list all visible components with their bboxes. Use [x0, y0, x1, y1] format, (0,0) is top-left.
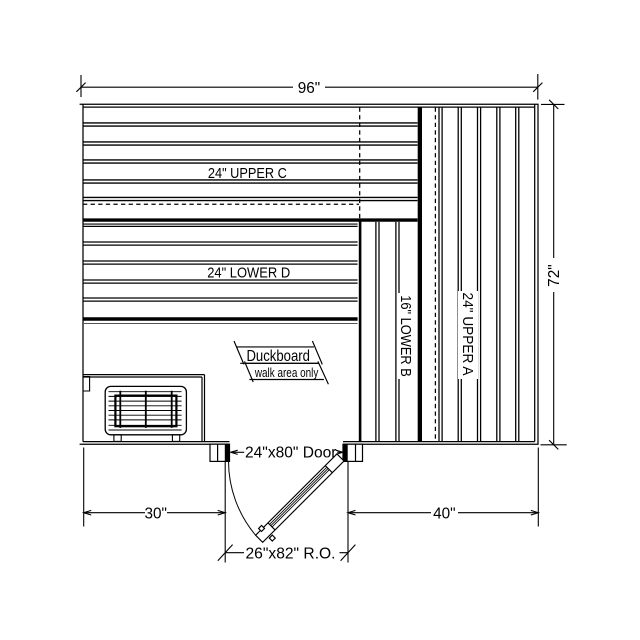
svg-text:30": 30" [144, 505, 166, 522]
svg-text:26"x82" R.O.: 26"x82" R.O. [246, 546, 336, 563]
svg-text:24" UPPER A: 24" UPPER A [459, 293, 475, 376]
svg-text:24" UPPER C: 24" UPPER C [208, 166, 287, 182]
svg-text:walk area only: walk area only [254, 366, 319, 380]
svg-text:40": 40" [433, 505, 455, 522]
svg-text:24" LOWER D: 24" LOWER D [207, 265, 290, 281]
svg-text:72": 72" [546, 264, 563, 286]
svg-text:Duckboard: Duckboard [246, 348, 310, 365]
svg-text:16" LOWER B: 16" LOWER B [397, 295, 413, 377]
svg-text:24"x80" Door: 24"x80" Door [245, 444, 337, 461]
svg-text:96": 96" [298, 80, 320, 97]
